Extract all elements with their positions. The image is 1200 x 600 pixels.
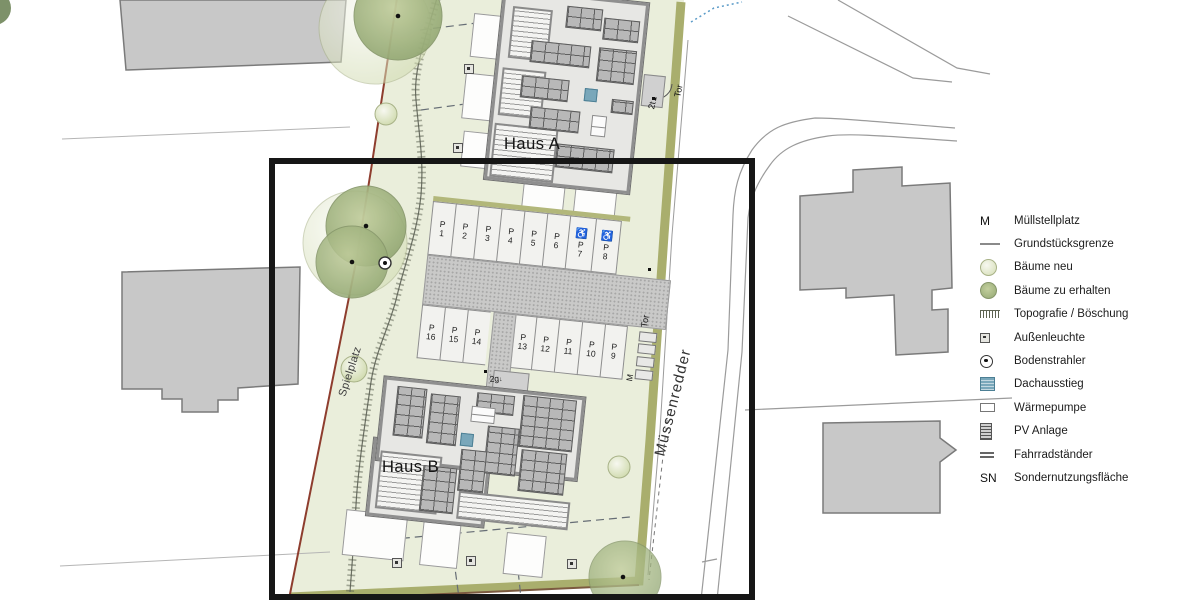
line-legend-symbol xyxy=(980,243,1000,245)
text-legend-symbol: SN xyxy=(980,471,997,485)
legend-label: Sondernutzungsfläche xyxy=(1014,472,1128,484)
legend-item: Außenleuchte xyxy=(978,326,1128,349)
legend-icon xyxy=(978,310,1014,318)
legend-icon xyxy=(978,243,1014,245)
pv-panels xyxy=(611,99,634,115)
pv-legend-symbol xyxy=(980,423,992,440)
legend-label: Müllstellplatz xyxy=(1014,215,1080,227)
neighbour-building-right-lower xyxy=(823,421,956,513)
legend-icon xyxy=(978,377,1014,391)
roof-exit-icon xyxy=(584,88,598,102)
legend-label: Bäume zu erhalten xyxy=(1014,285,1111,297)
pv-panels xyxy=(602,18,640,44)
legend-item: Fahrradständer xyxy=(978,443,1128,466)
roof-legend-symbol xyxy=(980,377,995,391)
haus-a-label: Haus A xyxy=(504,135,560,154)
legend-item: Bodenstrahler xyxy=(978,349,1128,372)
legend-label: Wärmepumpe xyxy=(1014,402,1086,414)
viewport-frame xyxy=(269,158,755,600)
pv-panels xyxy=(529,40,591,68)
blue-dotted-utility-line xyxy=(691,2,742,22)
legend-label: PV Anlage xyxy=(1014,425,1068,437)
hp-legend-symbol xyxy=(980,403,995,412)
up-arrow-icon: ▲ xyxy=(651,95,659,103)
heat-pump-icon xyxy=(590,115,607,137)
pv-panels xyxy=(596,47,637,85)
lamp-legend-symbol xyxy=(980,333,990,343)
legend: M Müllstellplatz Grundstücksgrenze Bäume… xyxy=(978,209,1128,490)
bike-legend-symbol xyxy=(980,450,994,460)
legend-label: Grundstücksgrenze xyxy=(1014,238,1114,250)
legend-label: Außenleuchte xyxy=(1014,332,1085,344)
site-plan-canvas: P 1 P 2 P 3 P 4 P 5 P 6 xyxy=(0,0,1200,600)
legend-item: PV Anlage xyxy=(978,420,1128,443)
legend-label: Bäume neu xyxy=(1014,261,1073,273)
legend-icon xyxy=(978,282,1014,299)
legend-item: SN Sondernutzungsfläche xyxy=(978,466,1128,489)
legend-item: Grundstücksgrenze xyxy=(978,232,1128,255)
spot-legend-symbol xyxy=(980,355,993,368)
corner-tree-sliver xyxy=(0,0,11,25)
legend-label: Topografie / Böschung xyxy=(1014,308,1128,320)
legend-item: Dachausstieg xyxy=(978,373,1128,396)
legend-item: M Müllstellplatz xyxy=(978,209,1128,232)
tree-new-legend-symbol xyxy=(980,259,997,276)
legend-label: Bodenstrahler xyxy=(1014,355,1086,367)
legend-icon: M xyxy=(978,214,1014,228)
legend-icon xyxy=(978,355,1014,368)
legend-icon xyxy=(978,333,1014,343)
legend-label: Dachausstieg xyxy=(1014,378,1084,390)
tree-keep-legend-symbol xyxy=(980,282,997,299)
legend-item: Topografie / Böschung xyxy=(978,303,1128,326)
legend-icon xyxy=(978,423,1014,440)
legend-item: Bäume neu xyxy=(978,256,1128,279)
neighbour-building-top-left xyxy=(120,0,346,70)
legend-label: Fahrradständer xyxy=(1014,449,1093,461)
neighbour-building-right-upper xyxy=(800,167,952,355)
legend-item: Bäume zu erhalten xyxy=(978,279,1128,302)
text-legend-symbol: M xyxy=(980,214,990,228)
legend-icon: SN xyxy=(978,471,1014,485)
legend-icon xyxy=(978,259,1014,276)
topo-legend-symbol xyxy=(980,310,1000,318)
pv-panels xyxy=(565,6,603,32)
survey-line-upper-left xyxy=(62,127,350,139)
legend-icon xyxy=(978,450,1014,460)
outdoor-lamp-icon xyxy=(453,143,463,153)
legend-item: Wärmepumpe xyxy=(978,396,1128,419)
legend-icon xyxy=(978,403,1014,412)
outdoor-lamp-icon xyxy=(464,64,474,74)
